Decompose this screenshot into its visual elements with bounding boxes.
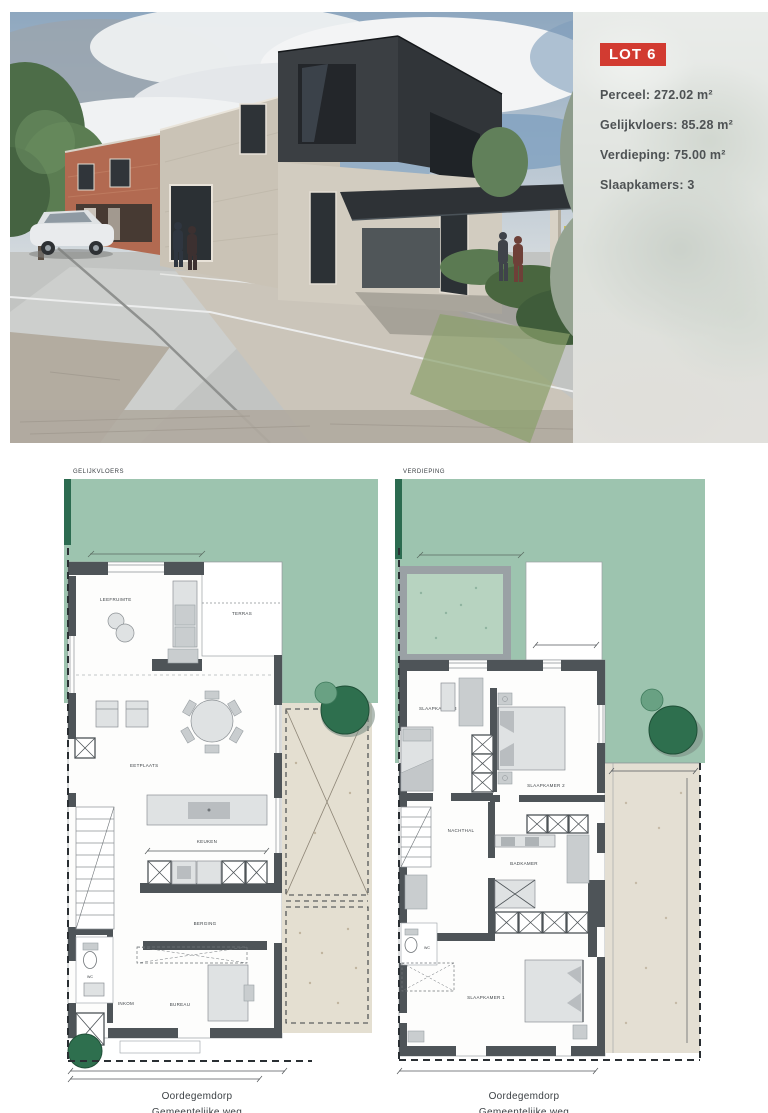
stairs bbox=[401, 807, 431, 909]
stairs bbox=[76, 807, 114, 929]
house-render-photo: LOT 6 Perceel: 272.02 m² Gelijkvloers: 8… bbox=[10, 12, 768, 443]
bottom-dimensions bbox=[397, 1068, 598, 1074]
spec-list: Perceel: 272.02 m² Gelijkvloers: 85.28 m… bbox=[600, 88, 768, 208]
wardrobe-column bbox=[472, 735, 493, 792]
spec-perceel: Perceel: 272.02 m² bbox=[600, 88, 768, 118]
slaapkamer2-label: SLAAPKAMER 2 bbox=[527, 783, 565, 788]
spec-gelijkvloers: Gelijkvloers: 85.28 m² bbox=[600, 118, 768, 148]
inkom-label: INKOM bbox=[118, 1001, 134, 1006]
wc-area: WC bbox=[76, 937, 113, 1003]
lot-badge: LOT 6 bbox=[600, 43, 666, 66]
road-type: Gemeentelijke weg bbox=[152, 1107, 242, 1113]
wc-label: WC bbox=[87, 975, 93, 979]
ground-plan-title: GELIJKVLOERS bbox=[73, 469, 124, 475]
void-terrace bbox=[526, 562, 602, 660]
wc-area: WC bbox=[401, 923, 437, 965]
nachthal-label: NACHTHAL bbox=[448, 828, 475, 833]
hedge bbox=[395, 479, 402, 559]
terras-area: TERRAS bbox=[202, 562, 282, 656]
closet-row bbox=[527, 815, 588, 833]
leefruimte-label: LEEFRUIMTE bbox=[100, 597, 132, 602]
entry-step bbox=[120, 1041, 200, 1053]
hedge bbox=[64, 479, 71, 545]
keuken-label: KEUKEN bbox=[197, 839, 217, 844]
bureau-label: BUREAU bbox=[170, 1002, 191, 1007]
driveway bbox=[282, 703, 372, 1033]
street-name: Oordegemdorp bbox=[162, 1091, 233, 1102]
slaapkamer1-label: SLAAPKAMER 1 bbox=[467, 995, 505, 1000]
street-name: Oordegemdorp bbox=[489, 1091, 560, 1102]
spec-slaapkamers: Slaapkamers: 3 bbox=[600, 178, 768, 208]
wc-label: WC bbox=[424, 946, 430, 950]
side-terrace bbox=[605, 763, 700, 1060]
badkamer-label: BADKAMER bbox=[510, 861, 538, 866]
upper-floor-plan: VERDIEPING bbox=[391, 463, 721, 1113]
terras-label: TERRAS bbox=[232, 611, 252, 616]
info-panel: LOT 6 Perceel: 272.02 m² Gelijkvloers: 8… bbox=[573, 12, 768, 443]
bush bbox=[68, 1034, 102, 1068]
upper-plan-title: VERDIEPING bbox=[403, 469, 445, 475]
green-roof bbox=[399, 566, 511, 662]
brochure-page: LOT 6 Perceel: 272.02 m² Gelijkvloers: 8… bbox=[0, 0, 768, 1113]
eetplaats-label: EETPLAATS bbox=[130, 763, 158, 768]
berging-label: BERGING bbox=[194, 921, 217, 926]
bottom-dimensions bbox=[68, 1068, 287, 1082]
ground-floor-plan: GELIJKVLOERS TERRAS bbox=[60, 463, 390, 1113]
road-type: Gemeentelijke weg bbox=[479, 1107, 569, 1113]
spec-verdieping: Verdieping: 75.00 m² bbox=[600, 148, 768, 178]
hall-wardrobe-row bbox=[495, 912, 588, 933]
